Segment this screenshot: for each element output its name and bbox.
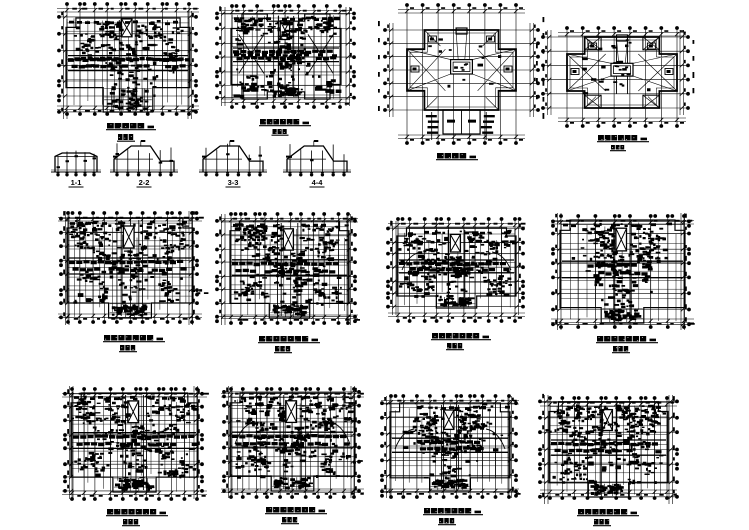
svg-text:1-1: 1-1 (71, 178, 82, 187)
svg-text:3-3: 3-3 (228, 178, 239, 187)
svg-text:4-4: 4-4 (312, 178, 324, 187)
svg-text:2-2: 2-2 (139, 178, 150, 187)
